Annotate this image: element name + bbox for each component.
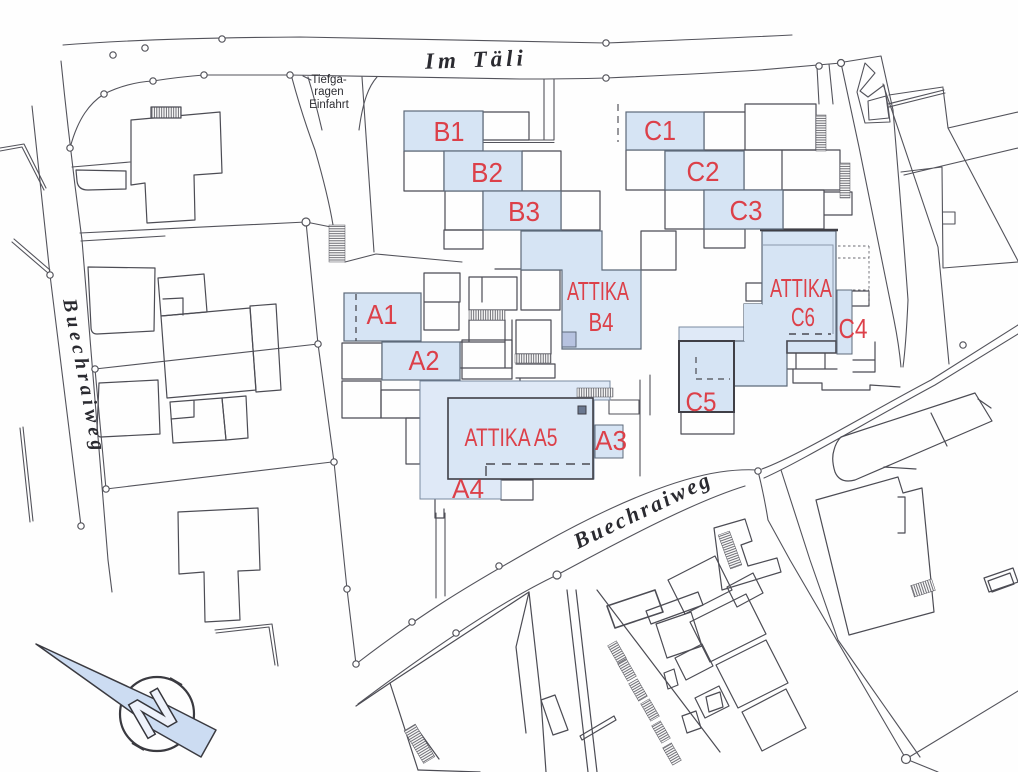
svg-text:Tiefga-: Tiefga-	[311, 74, 347, 86]
svg-text:C5: C5	[686, 387, 717, 417]
svg-text:Im Täli: Im Täli	[424, 45, 528, 74]
svg-text:Einfahrt: Einfahrt	[309, 99, 349, 111]
svg-text:C3: C3	[730, 195, 763, 226]
svg-text:B3: B3	[508, 196, 540, 227]
svg-text:ATTIKA: ATTIKA	[770, 273, 832, 303]
svg-text:B1: B1	[434, 116, 465, 147]
svg-text:B2: B2	[471, 157, 503, 188]
svg-text:A1: A1	[367, 299, 398, 330]
svg-text:A2: A2	[409, 345, 440, 376]
svg-text:A4: A4	[452, 474, 484, 504]
svg-text:ragen: ragen	[314, 86, 343, 98]
svg-text:C1: C1	[644, 115, 676, 146]
svg-text:ATTIKA A5: ATTIKA A5	[465, 424, 558, 452]
svg-text:C6: C6	[791, 302, 815, 332]
svg-text:C2: C2	[687, 156, 720, 187]
svg-text:B4: B4	[589, 307, 614, 337]
svg-text:A3: A3	[595, 425, 627, 456]
svg-text:ATTIKA: ATTIKA	[567, 276, 629, 306]
svg-text:C4: C4	[839, 313, 868, 344]
